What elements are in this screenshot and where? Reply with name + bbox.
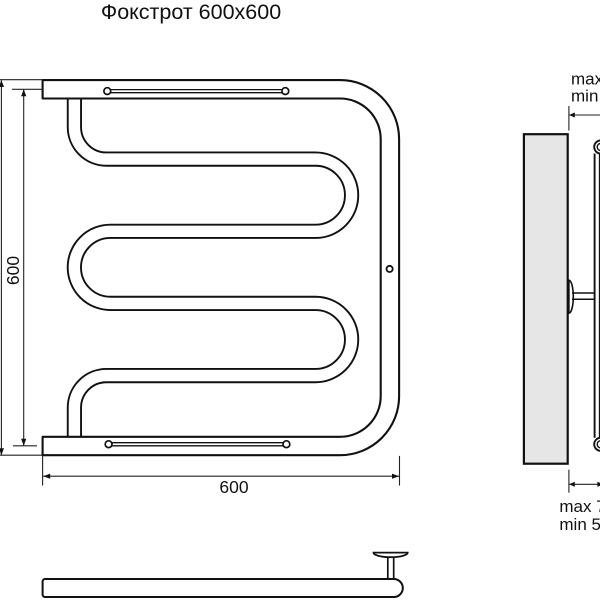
svg-text:600: 600 bbox=[219, 477, 248, 497]
svg-text:600: 600 bbox=[3, 256, 23, 285]
svg-text:min 50: min 50 bbox=[571, 87, 600, 106]
svg-text:Фокстрот 600x600: Фокстрот 600x600 bbox=[101, 0, 281, 24]
svg-text:min 50: min 50 bbox=[559, 515, 600, 534]
svg-text:max 75: max 75 bbox=[559, 497, 600, 516]
